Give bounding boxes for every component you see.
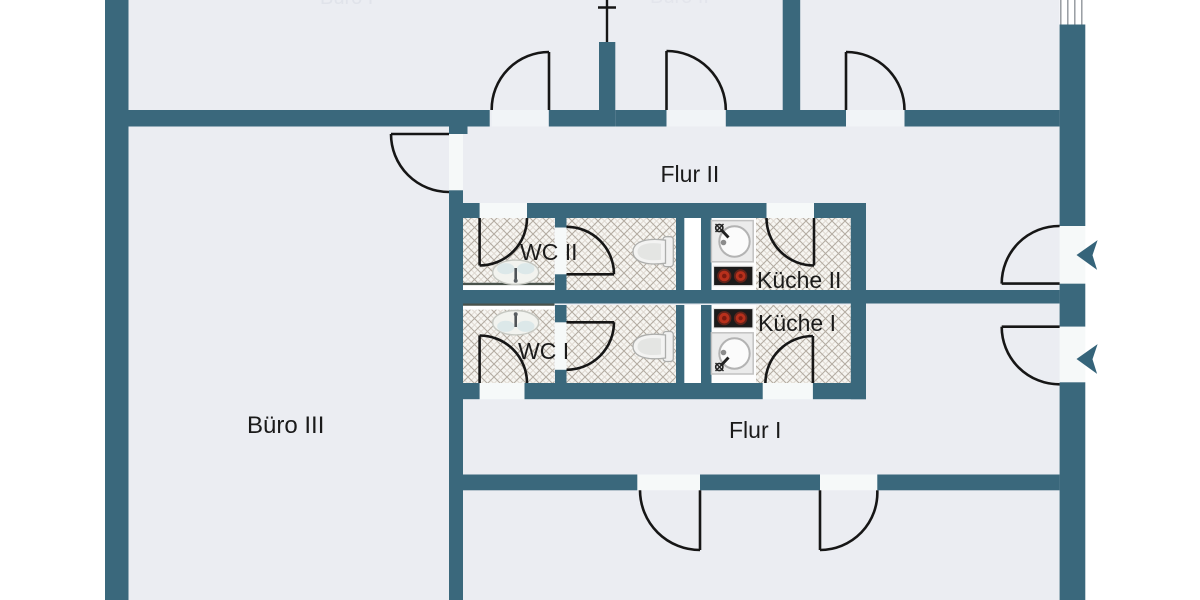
svg-text:WC II: WC II [520, 239, 578, 265]
svg-text:Küche II: Küche II [757, 267, 841, 293]
svg-text:Büro I: Büro I [320, 0, 373, 9]
svg-text:Büro III: Büro III [247, 412, 324, 439]
svg-text:WC I: WC I [518, 338, 569, 364]
svg-text:Flur I: Flur I [729, 417, 781, 443]
svg-text:Küche I: Küche I [758, 310, 836, 336]
svg-text:Flur II: Flur II [661, 161, 720, 187]
svg-text:Büro II: Büro II [650, 0, 709, 8]
